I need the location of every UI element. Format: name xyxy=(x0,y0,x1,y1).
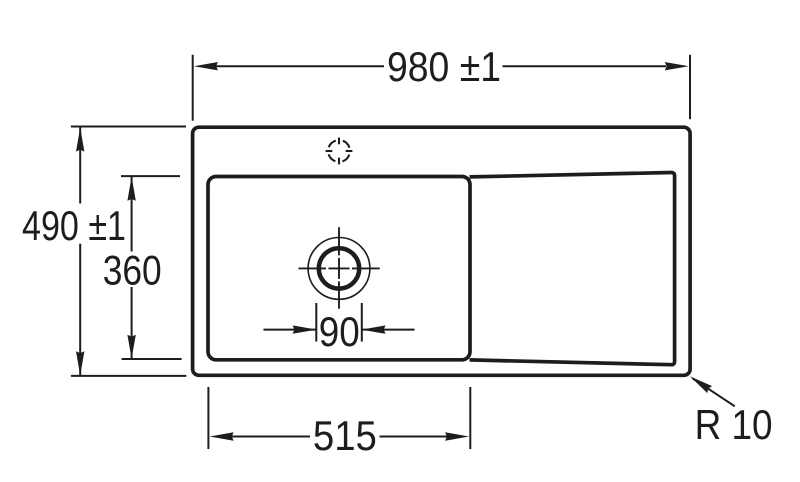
svg-text:490 ±1: 490 ±1 xyxy=(22,202,126,249)
svg-text:R 10: R 10 xyxy=(695,401,773,448)
svg-text:360: 360 xyxy=(103,247,162,294)
svg-text:515: 515 xyxy=(313,412,377,459)
svg-text:90: 90 xyxy=(319,308,360,355)
svg-text:980 ±1: 980 ±1 xyxy=(387,43,501,90)
